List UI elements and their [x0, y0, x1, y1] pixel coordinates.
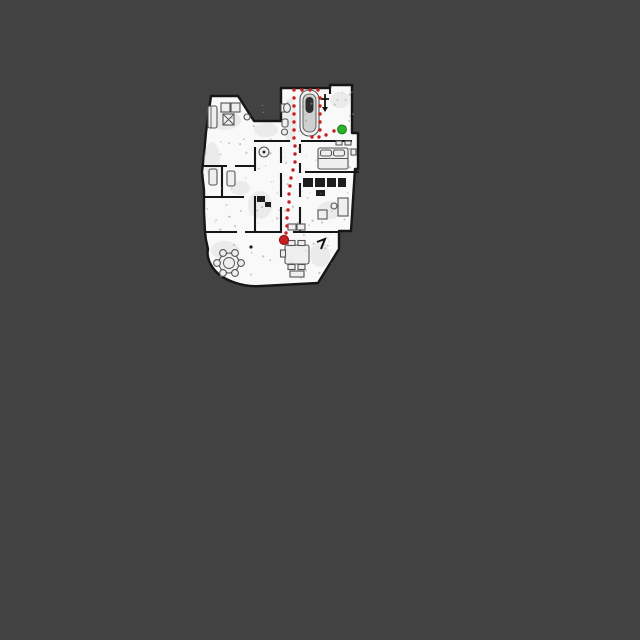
noise-speckle: [228, 142, 230, 144]
noise-speckle: [204, 156, 205, 157]
noise-speckle: [352, 113, 354, 115]
bed-icon: [318, 148, 348, 169]
path-dot: [332, 129, 335, 132]
noise-speckle: [255, 139, 256, 140]
noise-speckle: [349, 93, 351, 95]
noise-speckle: [273, 187, 274, 188]
noise-speckle: [245, 152, 247, 154]
path-dot: [285, 216, 288, 219]
path-dot: [318, 96, 321, 99]
noise-speckle: [284, 157, 285, 158]
closet-icon: [303, 178, 346, 187]
path-dot: [293, 152, 296, 155]
noise-speckle: [343, 218, 345, 220]
noise-speckle: [250, 274, 252, 276]
path-dot: [289, 176, 292, 179]
noise-speckle: [261, 206, 263, 208]
noise-speckle: [352, 155, 354, 157]
noise-speckle: [240, 210, 242, 212]
noise-speckle: [291, 262, 293, 264]
noise-speckle: [287, 102, 289, 104]
noise-speckle: [338, 214, 340, 216]
noise-speckle: [231, 117, 233, 119]
noise-speckle: [262, 255, 264, 257]
noise-speckle: [335, 149, 337, 151]
noise-speckle: [226, 204, 228, 206]
map-canvas[interactable]: [0, 0, 640, 640]
noise-speckle: [327, 238, 328, 239]
noise-speckle: [258, 223, 259, 224]
noise-speckle: [329, 157, 331, 159]
noise-speckle: [293, 225, 294, 226]
path-dot: [284, 231, 287, 234]
noise-speckle: [311, 220, 313, 222]
noise-speckle: [316, 190, 317, 191]
round-table-icon: [259, 147, 269, 157]
noise-speckle: [318, 272, 320, 274]
noise-speckle: [290, 181, 291, 182]
noise-speckle: [215, 221, 216, 222]
nightstand-icon: [351, 149, 356, 155]
noise-speckle: [351, 91, 353, 93]
noise-speckle: [269, 259, 271, 261]
noise-speckle: [278, 210, 279, 211]
path-dot: [318, 128, 321, 131]
path-dot: [293, 160, 296, 163]
sofa-icon: [208, 106, 217, 128]
noise-speckle: [220, 141, 222, 143]
path-dot: [292, 112, 295, 115]
noise-speckle: [285, 153, 286, 154]
noise-speckle: [219, 228, 221, 230]
noise-speckle: [348, 160, 350, 162]
noise-speckle: [305, 270, 307, 272]
noise-speckle: [321, 221, 323, 223]
path-dot: [300, 88, 303, 91]
path-dot: [292, 96, 295, 99]
path-dot: [324, 133, 327, 136]
bench-icon: [227, 171, 235, 186]
noise-speckle: [263, 112, 264, 113]
noise-speckle: [231, 188, 232, 189]
noise-speckle: [307, 197, 309, 199]
coffee-table-icon: [223, 114, 234, 125]
destination-marker[interactable]: [338, 125, 347, 134]
chair-icon: [331, 203, 337, 209]
noise-speckle: [256, 210, 258, 212]
path-dot: [317, 135, 320, 138]
noise-speckle: [205, 153, 206, 154]
noise-speckle: [345, 99, 347, 101]
noise-speckle: [270, 207, 271, 208]
path-dot: [292, 128, 295, 131]
noise-speckle: [347, 192, 348, 193]
noise-speckle: [243, 138, 245, 140]
noise-speckle: [345, 94, 346, 95]
floorplan-svg: [0, 0, 640, 640]
shelf-icon: [336, 141, 342, 145]
noise-speckle: [330, 250, 331, 251]
noise-speckle: [221, 188, 222, 189]
noise-speckle: [289, 260, 290, 261]
noise-speckle: [251, 252, 253, 254]
noise-speckle: [305, 250, 306, 251]
noise-speckle: [220, 275, 222, 277]
noise-speckle: [309, 192, 310, 193]
path-dot: [292, 120, 295, 123]
path-dot: [318, 120, 321, 123]
noise-speckle: [349, 115, 351, 117]
sideboard-icon: [288, 224, 296, 230]
path-dot: [318, 112, 321, 115]
plant-icon: [244, 114, 250, 120]
robot-marker[interactable]: [279, 235, 288, 244]
side-table-icon: [318, 210, 327, 219]
path-dot: [287, 200, 290, 203]
noise-speckle: [253, 125, 255, 127]
armchair-icon: [231, 103, 240, 112]
noise-speckle: [204, 174, 205, 175]
noise-speckle: [328, 241, 329, 242]
noise-speckle: [331, 210, 333, 212]
noise-speckle: [306, 155, 307, 156]
noise-speckle: [316, 97, 317, 98]
cabinet-icon: [265, 202, 271, 207]
noise-speckle: [300, 277, 302, 279]
noise-speckle: [233, 244, 235, 246]
sink-icon: [282, 129, 288, 135]
noise-speckle: [229, 216, 231, 218]
path-dot: [288, 184, 291, 187]
noise-speckle: [329, 234, 330, 235]
noise-speckle: [327, 244, 329, 246]
desk-icon: [338, 198, 348, 216]
noise-speckle: [334, 104, 336, 106]
noise-speckle: [320, 193, 321, 194]
noise-speckle: [276, 217, 278, 219]
path-dot: [292, 88, 295, 91]
noise-speckle: [310, 102, 312, 104]
toilet-icon: [281, 104, 290, 113]
noise-speckle: [331, 263, 332, 264]
path-dot: [292, 136, 295, 139]
noise-speckle: [292, 206, 294, 208]
noise-speckle: [312, 243, 314, 245]
noise-speckle: [215, 219, 216, 220]
noise-speckle: [348, 120, 350, 122]
noise-speckle: [286, 183, 288, 185]
noise-speckle: [265, 165, 266, 166]
noise-speckle: [305, 119, 307, 121]
bench-icon: [209, 169, 217, 185]
noise-speckle: [305, 96, 306, 97]
noise-speckle: [308, 224, 310, 226]
cabinet-icon: [257, 196, 265, 202]
noise-speckle: [297, 147, 299, 149]
path-dot: [308, 88, 311, 91]
noise-speckle: [303, 234, 305, 236]
path-dot: [292, 104, 295, 107]
sink-icon: [282, 119, 288, 127]
armchair-icon: [221, 103, 230, 112]
noise-speckle: [319, 154, 321, 156]
noise-speckle: [316, 109, 317, 110]
noise-speckle: [249, 214, 250, 215]
noise-speckle: [258, 168, 260, 170]
noise-speckle: [245, 177, 246, 178]
noise-speckle: [234, 225, 236, 227]
noise-speckle: [216, 219, 217, 220]
noise-speckle: [270, 138, 272, 140]
path-dot: [293, 144, 296, 147]
path-dot: [316, 88, 319, 91]
noise-speckle: [301, 106, 302, 107]
shelf-icon: [345, 141, 351, 145]
noise-speckle: [272, 221, 273, 222]
floorplan-map: [202, 85, 358, 286]
shelf-icon: [290, 271, 304, 277]
noise-speckle: [273, 181, 274, 182]
noise-speckle: [206, 208, 208, 210]
noise-speckle: [269, 152, 271, 154]
sideboard-icon: [297, 224, 305, 230]
noise-speckle: [285, 162, 287, 164]
path-dot: [310, 135, 313, 138]
noise-speckle: [342, 92, 343, 93]
noise-speckle: [304, 114, 306, 116]
noise-speckle: [298, 131, 300, 133]
path-dot: [287, 192, 290, 195]
noise-speckle: [271, 181, 272, 182]
noise-speckle: [348, 148, 350, 150]
noise-speckle: [287, 266, 289, 268]
path-dot: [291, 168, 294, 171]
cabinet-icon: [316, 190, 325, 196]
noise-speckle: [315, 159, 316, 160]
noise-speckle: [306, 169, 307, 170]
noise-speckle: [251, 190, 252, 191]
path-dot: [286, 208, 289, 211]
noise-speckle: [297, 221, 299, 223]
noise-speckle: [220, 154, 222, 156]
noise-speckle: [324, 247, 326, 249]
noise-speckle: [284, 210, 286, 212]
noise-speckle: [277, 192, 278, 193]
noise-speckle: [239, 143, 241, 145]
path-dot: [318, 104, 321, 107]
path-dot: [285, 224, 288, 227]
noise-speckle: [262, 105, 264, 107]
map-dot: [249, 245, 252, 248]
noise-speckle: [333, 148, 335, 150]
noise-speckle: [337, 99, 339, 101]
noise-speckle: [349, 166, 351, 168]
bathtub-icon: [300, 90, 319, 136]
